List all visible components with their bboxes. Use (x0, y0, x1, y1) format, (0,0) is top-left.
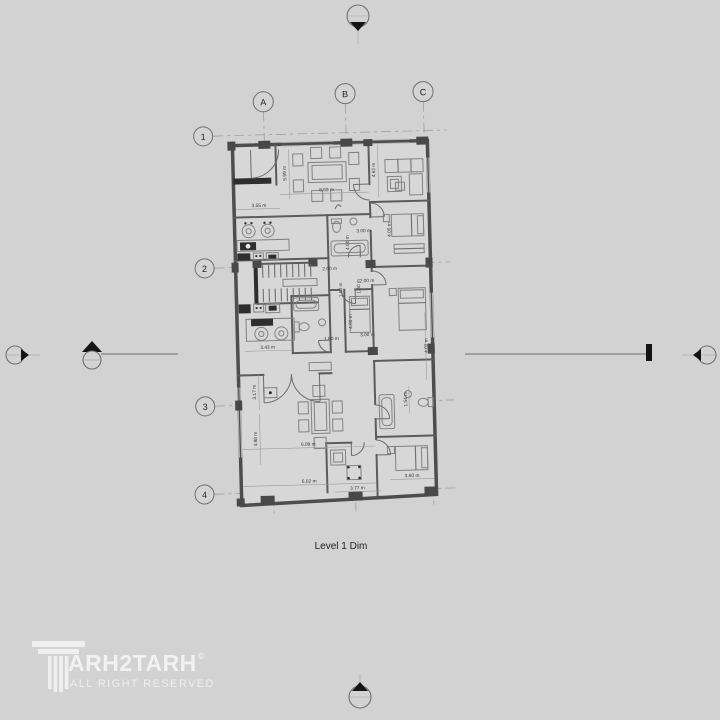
dimension-label: 8.69 m (319, 187, 334, 193)
grid-bubble-4: 4 (195, 485, 214, 504)
dimension-label: 1.80 m (324, 336, 339, 342)
elevation-marker-top (347, 5, 369, 44)
dimension-label: 3.77 m (350, 485, 365, 491)
grid-label-1: 1 (201, 132, 206, 142)
dimension-label: 4.00 m (386, 222, 392, 237)
grid-label-a: A (260, 97, 266, 107)
grid-bubble-a: A (253, 92, 274, 113)
dimension-label: 1.60 m (338, 282, 344, 297)
building-plan: A B C 1 2 3 4 (184, 81, 460, 516)
dimension-label: 3.60 m (405, 473, 420, 479)
dimension-label: 6.02 m (302, 479, 317, 485)
grid-bubble-c: C (413, 81, 434, 102)
grid-label-b: B (342, 89, 348, 99)
dimension-label: 2.00 m (322, 266, 337, 272)
dimension-label: 3.43 m (260, 345, 275, 351)
dimension-label: 4.00 m (348, 314, 354, 329)
floor-plan-canvas: A B C 1 2 3 4 (0, 0, 720, 720)
dimension-label: 5.99 m (282, 166, 288, 181)
grid-label-2: 2 (202, 264, 207, 274)
copyright-symbol: © (198, 651, 205, 661)
dimension-label: 4.98 m (253, 432, 259, 447)
grid-bubble-b: B (335, 83, 356, 104)
drawing-sheet: A B C 1 2 3 4 (0, 0, 720, 720)
grid-label-c: C (420, 87, 427, 97)
watermark-brand-letters: ARH2TARH (68, 650, 197, 676)
grid-bubble-2: 2 (195, 259, 214, 278)
section-marker-right (465, 344, 652, 361)
dimension-label: 4.62 m (371, 163, 377, 178)
grid-label-4: 4 (202, 490, 207, 500)
drawing-title: Level 1 Dim (315, 541, 368, 552)
dimension-label: 3.55 m (252, 203, 267, 209)
dimension-label: 3.17 m (252, 385, 258, 400)
grid-label-3: 3 (203, 402, 208, 412)
dimension-label: 6.09 m (301, 442, 316, 448)
dimension-label: 4.00 m (345, 235, 351, 250)
section-marker-left (82, 341, 178, 369)
dimension-label: 4.02 m (424, 338, 430, 353)
grid-bubble-1: 1 (193, 127, 212, 146)
dimension-label: 3.00 m (356, 228, 371, 234)
dimension-label: 3.00 m (360, 332, 375, 338)
watermark-tagline: ALL RIGHT RESERVED (70, 678, 215, 690)
watermark-brand: ARH2TARH© (68, 650, 205, 677)
elevation-marker-right (682, 346, 716, 364)
elevation-marker-left (6, 346, 40, 364)
dimension-label: 1.60 m (356, 279, 362, 294)
elevation-marker-bottom (349, 674, 371, 708)
dimension-label: 1.54 m (403, 392, 409, 407)
grid-bubble-3: 3 (195, 397, 214, 416)
watermark-logo: ARH2TARH© ALL RIGHT RESERVED (32, 641, 202, 695)
